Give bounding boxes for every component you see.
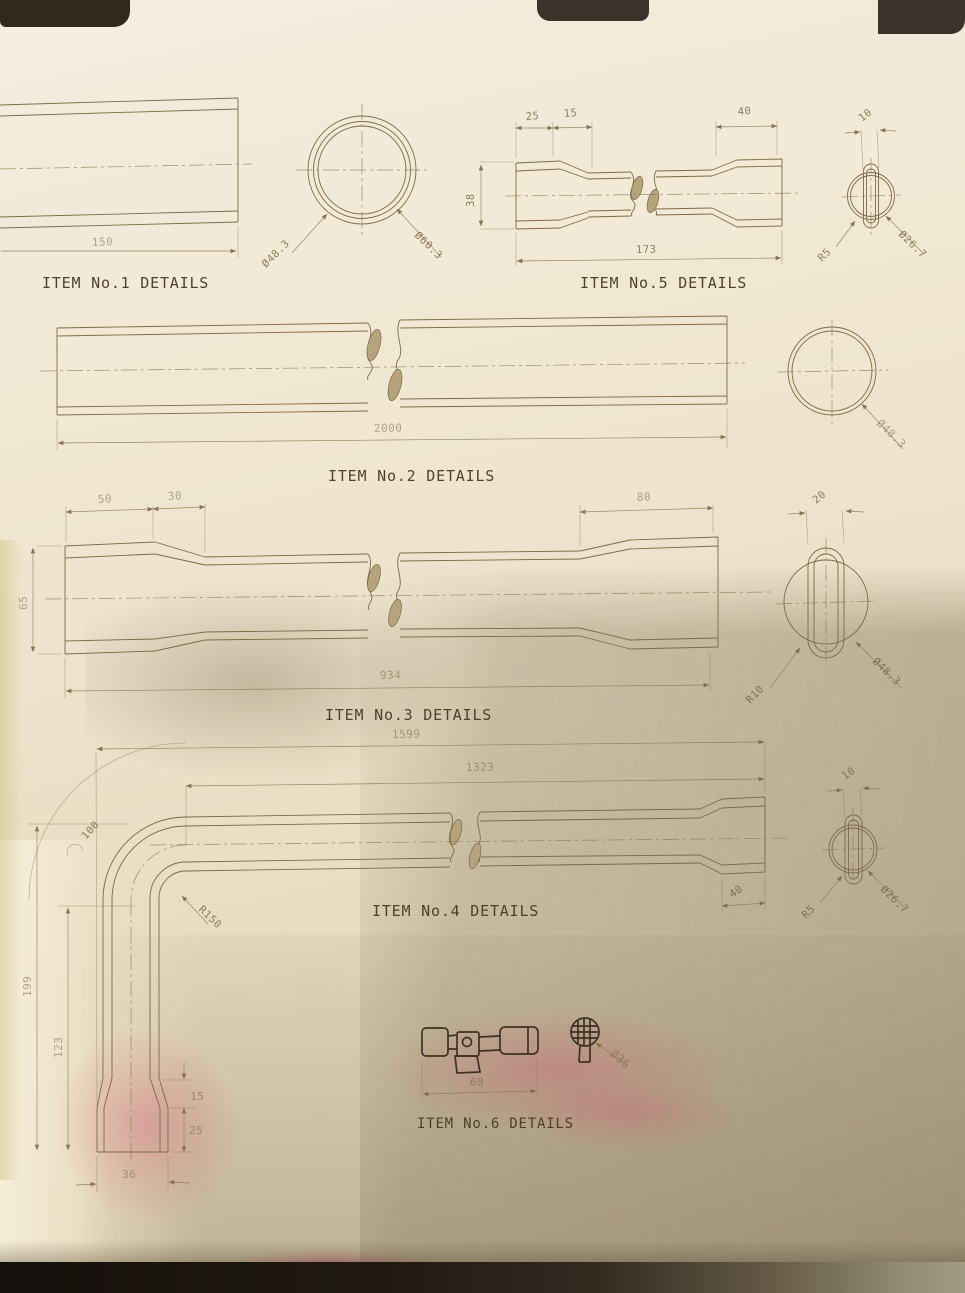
photo-dark-band-bottom bbox=[0, 1262, 965, 1293]
item5-length-dim: 173 bbox=[636, 244, 657, 256]
item4-overall-dim: 1599 bbox=[392, 728, 421, 741]
item4-diameter-label: Ø26.7 bbox=[878, 884, 911, 916]
item5-caption: ITEM No.5 DETAILS bbox=[580, 274, 747, 292]
item4-bend-arc-dim: 100 bbox=[79, 819, 102, 842]
drawing-linework: 150 ITEM No.1 DETAILS Ø48.3 Ø60.3 bbox=[0, 0, 965, 1293]
photo-dark-edge-top-left bbox=[0, 0, 130, 27]
item4-side-view: 100 R150 1599 1323 199 123 15 25 36 bbox=[21, 728, 790, 1192]
item3-slot-width-dim: 20 bbox=[810, 489, 828, 507]
item4-slot-width-dim: 10 bbox=[840, 765, 858, 783]
item6-part-view: 68 ITEM No.6 DETAILS bbox=[417, 1027, 574, 1132]
item5-end-view: 10 R5 Ø26.7 bbox=[816, 107, 929, 265]
item6-length-dim: 68 bbox=[470, 1076, 484, 1089]
item3-length-dim: 934 bbox=[380, 669, 402, 682]
item4-leg-height-dim: 199 bbox=[21, 976, 34, 997]
photo-dark-edge-top-middle bbox=[537, 0, 649, 21]
item4-straight-dim: 1323 bbox=[466, 761, 495, 774]
item2-caption: ITEM No.2 DETAILS bbox=[328, 467, 495, 485]
item1-section-view: Ø48.3 Ø60.3 bbox=[260, 104, 445, 270]
item5-right-socket-dim: 40 bbox=[737, 105, 751, 118]
item4-bend-radius-label: R150 bbox=[196, 904, 224, 932]
item1-inner-diameter-label: Ø48.3 bbox=[260, 238, 293, 271]
item6-caption: ITEM No.6 DETAILS bbox=[417, 1116, 574, 1132]
item2-side-view: 2000 ITEM No.2 DETAILS bbox=[40, 316, 745, 485]
item5-od-dim: 38 bbox=[465, 193, 477, 207]
item3-socket-dim: 50 bbox=[97, 492, 112, 506]
item4-end-width-dim: 36 bbox=[122, 1168, 136, 1181]
item1-outer-diameter-label: Ø60.3 bbox=[412, 230, 445, 262]
item3-side-view: 50 30 80 65 934 ITEM No.3 DETAILS bbox=[17, 489, 770, 724]
item4-taper-dim: 15 bbox=[190, 1090, 204, 1103]
item6-diameter-label: Ø36 bbox=[608, 1047, 633, 1071]
item4-end-view: 10 R5 Ø26.7 bbox=[800, 765, 911, 921]
paper-bottom-edge-shadow bbox=[0, 1240, 965, 1262]
item3-right-socket-dim: 80 bbox=[636, 490, 651, 504]
item4-caption: ITEM No.4 DETAILS bbox=[372, 902, 539, 920]
item3-slot-radius-label: R10 bbox=[744, 683, 767, 706]
item5-side-view: 25 15 40 38 173 ITEM No.5 DETAILS bbox=[465, 105, 800, 292]
item3-od-dim: 65 bbox=[17, 596, 30, 610]
item5-slot-width-dim: 10 bbox=[856, 107, 874, 125]
item1-length-dim: 150 bbox=[92, 235, 114, 249]
item3-diameter-label: Ø48.3 bbox=[870, 656, 903, 688]
item1-side-view: 150 ITEM No.1 DETAILS bbox=[0, 98, 252, 292]
item2-length-dim: 2000 bbox=[374, 422, 403, 435]
item3-end-view: 20 R10 Ø48.3 bbox=[744, 489, 903, 707]
item2-section-view: Ø48.3 bbox=[778, 320, 909, 451]
item4-right-socket-dim: 40 bbox=[727, 883, 745, 901]
item3-caption: ITEM No.3 DETAILS bbox=[325, 706, 492, 724]
item5-diameter-label: Ø26.7 bbox=[896, 229, 929, 261]
item6-end-view: Ø36 bbox=[571, 1018, 633, 1071]
technical-drawing-photo: 150 ITEM No.1 DETAILS Ø48.3 Ø60.3 bbox=[0, 0, 965, 1293]
item5-socket-dim: 25 bbox=[525, 110, 539, 123]
item4-leg-inner-dim: 123 bbox=[52, 1037, 65, 1058]
item3-taper-dim: 30 bbox=[167, 489, 182, 503]
item4-socket-dim: 25 bbox=[189, 1124, 203, 1137]
item1-caption: ITEM No.1 DETAILS bbox=[42, 274, 209, 292]
item5-slot-radius-label: R5 bbox=[816, 246, 834, 264]
photo-dark-edge-top-right bbox=[878, 0, 965, 34]
item5-taper-dim: 15 bbox=[563, 107, 577, 120]
item4-slot-radius-label: R5 bbox=[800, 903, 818, 921]
item2-diameter-label: Ø48.3 bbox=[874, 417, 909, 451]
